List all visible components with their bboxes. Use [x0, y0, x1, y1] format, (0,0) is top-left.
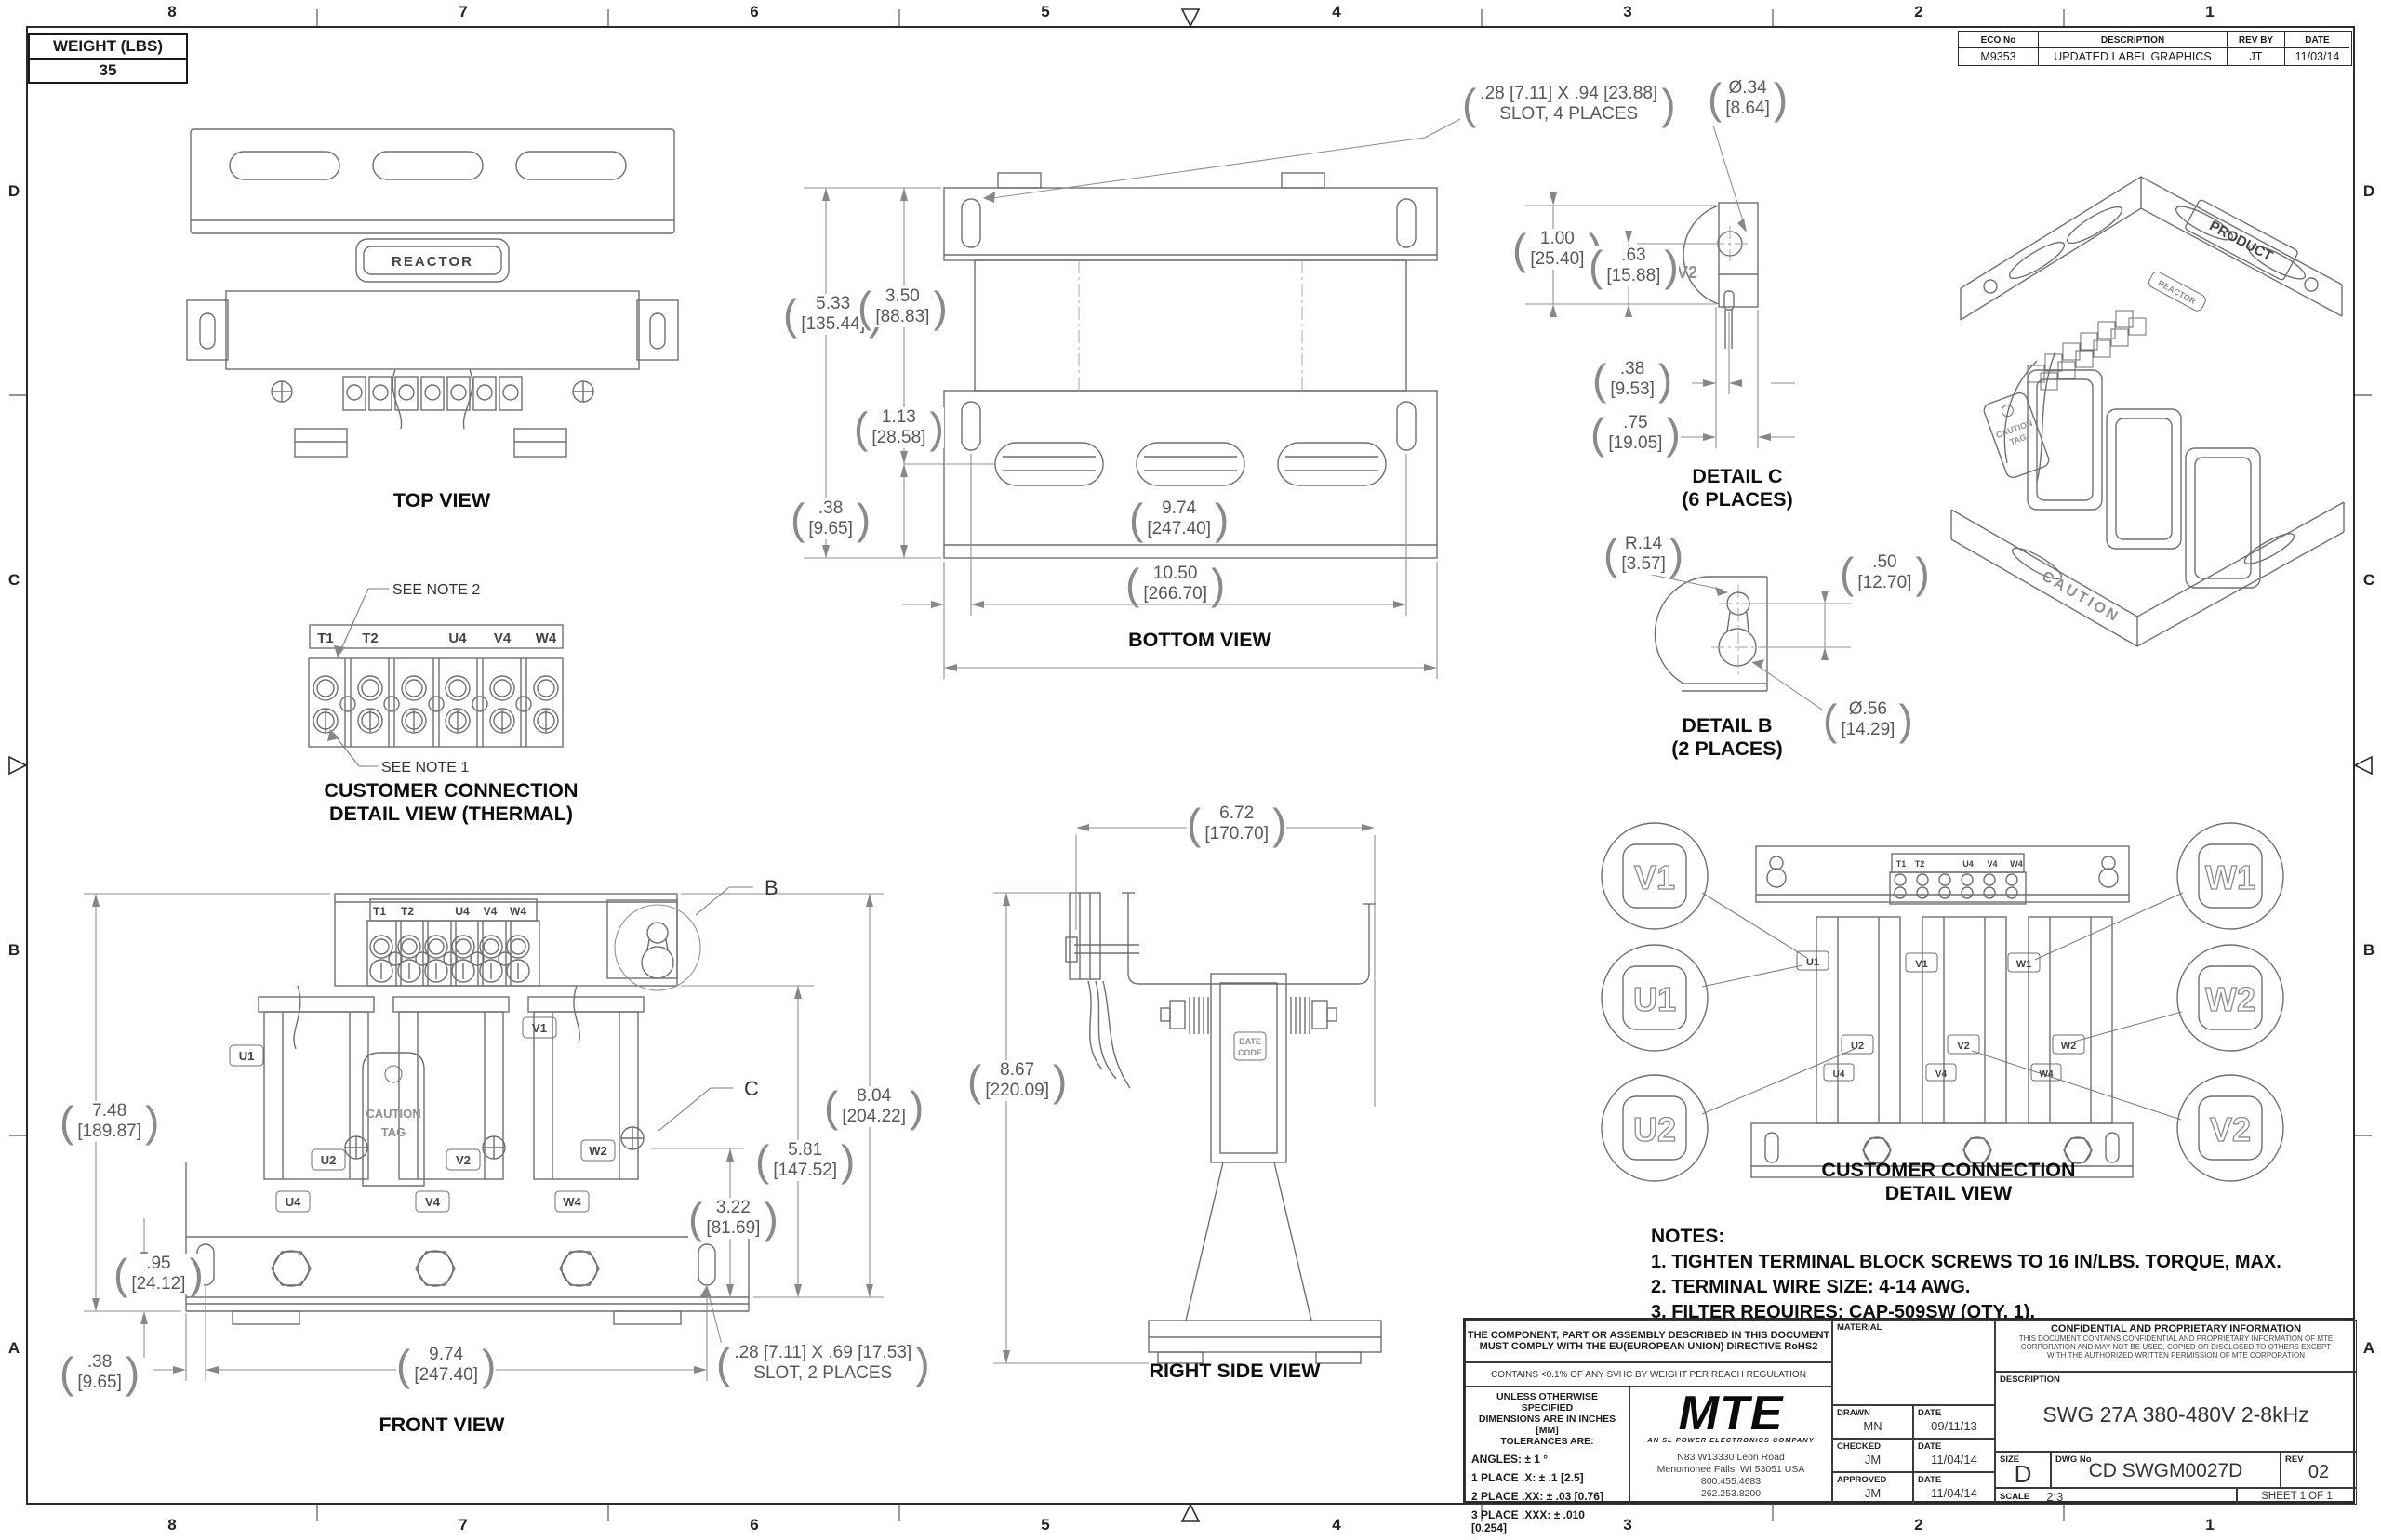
drawn-date-label: DATE: [1918, 1408, 1941, 1418]
front-tab-u1: U1: [239, 1049, 255, 1063]
drawn-date-value: 09/11/13: [1914, 1419, 1994, 1433]
description-cell: DESCRIPTION SWG 27A 380-480V 2-8kHz: [1995, 1372, 2357, 1452]
right-side-view-drawing: DATE CODE: [949, 800, 1470, 1414]
iso-terminal-block: [2028, 311, 2146, 390]
conn-tab-u1: U1: [1806, 957, 1819, 968]
eco-date-header: DATE: [2285, 32, 2349, 47]
mte-address-line4: 262.253.8200: [1630, 1488, 1831, 1500]
iso-coils: [2004, 352, 2260, 588]
slot-note-4-places: (.28 [7.11] X .94 [23.88]SLOT, 4 PLACES): [1462, 84, 1676, 125]
eco-description-value: UPDATED LABEL GRAPHICS: [2039, 47, 2228, 65]
tol-line3: TOLERANCES ARE:: [1471, 1436, 1623, 1447]
paren-close: ): [857, 500, 871, 538]
dim-mm: [25.40]: [1530, 249, 1584, 270]
confidential-heading: CONFIDENTIAL AND PROPRIETARY INFORMATION: [1996, 1323, 2356, 1334]
dim-mm: [9.53]: [1610, 379, 1655, 400]
top-view-geometry: [187, 129, 678, 457]
front-view-tab-outlines: [230, 1017, 615, 1212]
thermal-caption-line2: DETAIL VIEW (THERMAL): [321, 803, 581, 826]
front-view-base: [186, 1162, 749, 1324]
dim-detailc-to-hole: (.63[15.88]): [1589, 246, 1679, 286]
slot2-line1: .28 [7.11] X .69 [17.53]: [734, 1343, 911, 1363]
detail-b-caption: DETAIL B (2 PLACES): [1657, 714, 1797, 761]
dwg-no-label: DWG No: [2055, 1454, 2092, 1465]
dim-in: .38: [87, 1352, 112, 1373]
paren-open: (: [1462, 86, 1476, 123]
dim-mm: [28.58]: [871, 428, 925, 448]
front-tab-u4: U4: [286, 1195, 301, 1209]
bottom-view-drawing: [763, 84, 1470, 688]
date-code-line2: CODE: [1238, 1048, 1262, 1057]
notes-heading: NOTES:: [1651, 1226, 2367, 1248]
dim-bottom-slot-to-edge: (1.13[28.58]): [854, 407, 944, 448]
paren-close: ): [1664, 247, 1678, 285]
dim-mm: [204.22]: [842, 1107, 906, 1127]
dim-mm: [88.83]: [875, 307, 929, 327]
dim-front-bracket-height: (8.04[204.22]): [824, 1086, 924, 1127]
checked-value: JM: [1833, 1453, 1912, 1467]
confidential-line3: WITH THE AUTHORIZED WRITTEN PERMISSION O…: [1996, 1351, 2356, 1360]
paren-close: ): [841, 1142, 855, 1179]
iso-reactor-tag: REACTOR: [2147, 270, 2207, 312]
paren-close: ): [1915, 554, 1929, 591]
zone-right-a: A: [2355, 1339, 2381, 1358]
size-cell: SIZE D: [1995, 1452, 2051, 1488]
dim-mm: [147.52]: [773, 1161, 837, 1181]
paren-close: ): [1661, 86, 1675, 123]
top-view-caption: TOP VIEW: [372, 489, 512, 512]
weight-value: 35: [30, 60, 186, 82]
front-terminal-t2: T2: [401, 905, 414, 918]
dim-in: 1.13: [882, 407, 916, 428]
note-2: 2. TERMINAL WIRE SIZE: 4-14 AWG.: [1651, 1275, 2367, 1300]
conn-tab-w2: W2: [2061, 1041, 2077, 1052]
zone-left-a: A: [0, 1339, 28, 1358]
drawn-cell: DRAWN MN: [1832, 1405, 1913, 1439]
detail-b-caption-line2: (2 PLACES): [1657, 737, 1797, 761]
tol-angles: ANGLES: ± 1 °: [1471, 1453, 1623, 1466]
dim-detailc-pin-offset: (.38[9.53]): [1592, 359, 1672, 400]
dim-in: .63: [1621, 246, 1645, 266]
notes-block: NOTES: 1. TIGHTEN TERMINAL BLOCK SCREWS …: [1651, 1226, 2367, 1325]
conn-terminal-u4: U4: [1962, 859, 1974, 869]
drawn-label: DRAWN: [1837, 1408, 1870, 1418]
paren-close: ): [764, 1200, 778, 1237]
dim-mm: [3.57]: [1621, 554, 1666, 575]
paren-close: ): [482, 1347, 496, 1384]
eco-date-value: 11/03/14: [2285, 47, 2349, 65]
iso-caution-tag: CAUTION TAG: [1982, 391, 2051, 479]
zone-bottom-6: 6: [740, 1516, 768, 1534]
conn-tab-u2: U2: [1851, 1041, 1864, 1052]
approved-date-cell: DATE 11/04/14: [1913, 1472, 1995, 1505]
iso-product-tag: PRODUCT: [2185, 199, 2299, 281]
dim-mm: [8.64]: [1725, 99, 1770, 119]
dim-mm: [247.40]: [414, 1365, 478, 1386]
thermal-note-leaders: [333, 589, 389, 766]
paren-close: ): [933, 288, 947, 325]
slot-note-2-places: (.28 [7.11] X .69 [17.53]SLOT, 2 PLACES): [716, 1343, 930, 1384]
front-view-caution-tag: CAUTION TAG: [363, 1053, 424, 1186]
thermal-terminal-v4: V4: [494, 631, 512, 646]
zone-left-c: C: [0, 571, 28, 590]
paren-open: (: [1592, 361, 1606, 398]
paren-open: (: [755, 1142, 769, 1179]
detail-c-caption-line2: (6 PLACES): [1654, 488, 1821, 511]
weight-label: WEIGHT (LBS): [30, 35, 186, 60]
paren-close: ): [145, 1103, 159, 1140]
front-tab-v2: V2: [456, 1153, 471, 1167]
dim-bottom-edge-offset: (.38[9.65]): [791, 498, 871, 539]
dim-in: Ø.34: [1729, 78, 1767, 99]
dim-mm: [189.87]: [77, 1122, 141, 1142]
confidential-line1: THIS DOCUMENT CONTAINS CONFIDENTIAL AND …: [1996, 1334, 2356, 1343]
detail-c-caption: DETAIL C (6 PLACES): [1654, 465, 1821, 511]
paren-close: ): [1669, 536, 1683, 573]
paren-open: (: [858, 288, 871, 325]
zone-bottom-1: 1: [2196, 1516, 2224, 1534]
conn-caption-line2: DETAIL VIEW: [1809, 1182, 2088, 1205]
conn-terminal-t1: T1: [1896, 859, 1907, 869]
conn-balloon-leaders: [1702, 893, 2183, 1120]
description-value: SWG 27A 380-480V 2-8kHz: [1996, 1402, 2356, 1427]
tol-line2: DIMENSIONS ARE IN INCHES [MM]: [1471, 1414, 1623, 1436]
eco-header-row: ECO No DESCRIPTION REV BY DATE: [1959, 32, 2351, 47]
rev-value: 02: [2281, 1462, 2356, 1483]
reach-statement: CONTAINS <0.1% OF ANY SVHC BY WEIGHT PER…: [1491, 1370, 1806, 1380]
weight-box: WEIGHT (LBS) 35: [28, 33, 188, 84]
dim-right-depth: (6.72[170.70]): [1187, 803, 1286, 844]
isometric-view-drawing: PRODUCT REACTOR CAUTION TAG CAUTION: [1897, 73, 2367, 579]
conn-terminal-v4: V4: [1987, 859, 1997, 869]
balloon-u1: U1: [1633, 980, 1676, 1018]
zone-top-8: 8: [158, 3, 186, 21]
checked-label: CHECKED: [1837, 1441, 1881, 1452]
zone-top-6: 6: [740, 3, 768, 21]
zone-right-b: B: [2355, 941, 2381, 960]
dim-mm: [135.44]: [801, 314, 865, 335]
confidential-line2: CORPORATION AND MAY NOT BE USED, COPIED …: [1996, 1343, 2356, 1351]
conn-tab-w4: W4: [2040, 1069, 2054, 1080]
paren-open: (: [688, 1200, 702, 1237]
eco-no-value: M9353: [1959, 47, 2039, 65]
dim-in: .75: [1623, 413, 1647, 433]
mte-tagline: AN SL POWER ELECTRONICS COMPANY: [1630, 1436, 1831, 1444]
mte-address-line3: 800.455.4683: [1630, 1476, 1831, 1488]
dim-in: 3.22: [716, 1198, 751, 1218]
right-side-view-caption: RIGHT SIDE VIEW: [1139, 1360, 1330, 1383]
paren-open: (: [396, 1347, 410, 1384]
paren-close: ): [1666, 415, 1680, 452]
conn-tab-v2: V2: [1957, 1041, 1969, 1052]
dim-bottom-slot-span: (9.74[247.40]): [1129, 498, 1229, 539]
detail-b-geometry: [1655, 577, 1767, 691]
approved-date-label: DATE: [1918, 1475, 1941, 1485]
dim-in: .38: [818, 498, 843, 519]
logo-cell: MTE AN SL POWER ELECTRONICS COMPANY N83 …: [1629, 1387, 1832, 1505]
paren-open: (: [60, 1354, 73, 1391]
dim-mm: [15.88]: [1606, 266, 1660, 286]
bottom-view-caption: BOTTOM VIEW: [1111, 629, 1288, 652]
dim-in: 9.74: [429, 1345, 463, 1365]
front-tab-v4: V4: [425, 1195, 441, 1209]
eco-no-header: ECO No: [1959, 32, 2039, 47]
thermal-detail-caption: CUSTOMER CONNECTION DETAIL VIEW (THERMAL…: [321, 779, 581, 826]
dim-mm: [12.70]: [1857, 573, 1911, 593]
right-side-geometry: [1066, 893, 1381, 1363]
zone-top-7: 7: [449, 3, 477, 21]
front-tab-u2: U2: [321, 1153, 337, 1167]
confidential-cell: CONFIDENTIAL AND PROPRIETARY INFORMATION…: [1995, 1320, 2357, 1372]
paren-open: (: [1603, 536, 1617, 573]
tol-place1: 1 PLACE .X: ± .1 [2.5]: [1471, 1471, 1623, 1484]
paren-close: ): [1658, 361, 1672, 398]
thermal-terminal-w4: W4: [536, 631, 557, 646]
callout-c-letter: C: [744, 1077, 759, 1100]
mte-address-line2: Menomonee Falls, WI 53051 USA: [1630, 1464, 1831, 1476]
dim-mm: [247.40]: [1147, 519, 1211, 539]
paren-open: (: [1708, 80, 1722, 117]
thermal-terminal-t2: T2: [362, 631, 379, 646]
tol-line1: UNLESS OTHERWISE SPECIFIED: [1471, 1391, 1623, 1414]
eco-revision-table: ECO No DESCRIPTION REV BY DATE M9353 UPD…: [1958, 31, 2352, 66]
dim-front-mid-height: (5.81[147.52]): [755, 1140, 855, 1181]
sheet-value: SHEET 1 OF 1: [2261, 1491, 2332, 1502]
paren-open: (: [1187, 805, 1201, 843]
drawn-date-cell: DATE 09/11/13: [1913, 1405, 1995, 1439]
paren-close: ): [915, 1345, 929, 1382]
balloon-w2: W2: [2205, 980, 2255, 1018]
reach-cell: CONTAINS <0.1% OF ANY SVHC BY WEIGHT PER…: [1465, 1362, 1832, 1387]
see-note-1-label: SEE NOTE 1: [381, 760, 469, 776]
tol-place3: 3 PLACE .XXX: ± .010 [0.254]: [1471, 1508, 1623, 1534]
checked-date-cell: DATE 11/04/14: [1913, 1439, 1995, 1472]
paren-open: (: [1840, 554, 1854, 591]
dim-in: 6.72: [1219, 803, 1254, 824]
dim-front-coil-height: (3.22[81.69]): [688, 1198, 778, 1239]
dim-right-overall-height: (8.67[220.09]): [967, 1060, 1067, 1101]
eco-description-header: DESCRIPTION: [2039, 32, 2228, 47]
compliance-line2: MUST COMPLY WITH THE EU(EUROPEAN UNION) …: [1480, 1341, 1818, 1352]
zone-left-b: B: [0, 941, 28, 960]
paren-open: (: [1129, 500, 1143, 538]
tol-place2: 2 PLACE .XX: ± .03 [0.76]: [1471, 1490, 1623, 1503]
zone-left-d: D: [0, 182, 28, 201]
dim-mm: [14.29]: [1841, 720, 1895, 740]
paren-close: ): [189, 1255, 203, 1293]
title-block: THE COMPONENT, PART OR ASSEMBLY DESCRIBE…: [1463, 1318, 2355, 1503]
dwg-no-cell: DWG No CD SWGM0027D: [2051, 1452, 2281, 1488]
size-label: SIZE: [2000, 1454, 2019, 1465]
paren-close: ): [1774, 80, 1788, 117]
conn-tab-w1: W1: [2016, 959, 2032, 970]
compliance-line1: THE COMPONENT, PART OR ASSEMBLY DESCRIBE…: [1468, 1330, 1829, 1341]
paren-open: (: [1823, 701, 1837, 738]
dim-in: 8.04: [857, 1086, 891, 1107]
reactor-nameplate-label: REACTOR: [392, 254, 473, 270]
detail-b-caption-line1: DETAIL B: [1657, 714, 1797, 737]
zone-bottom-4: 4: [1323, 1516, 1350, 1534]
dim-mm: [9.65]: [808, 519, 853, 539]
paren-open: (: [1512, 231, 1526, 268]
description-label: DESCRIPTION: [2000, 1374, 2060, 1385]
paren-open: (: [967, 1062, 981, 1099]
conn-tab-outlines: [1797, 951, 2084, 1081]
thermal-terminal-t1: T1: [317, 631, 334, 646]
dim-in: .95: [146, 1254, 170, 1274]
front-terminal-w4: W4: [510, 905, 526, 918]
zone-top-2: 2: [1905, 3, 1933, 21]
iso-bracket: [1961, 177, 2342, 320]
detail-b-arrowheads: [1715, 587, 1829, 669]
dim-detailb-radius: (R.14[3.57]): [1603, 534, 1683, 575]
zone-right-d: D: [2355, 182, 2381, 201]
slot2-line2: SLOT, 2 PLACES: [753, 1363, 892, 1384]
detail-c-v2-label: V2: [1677, 263, 1697, 282]
balloon-v1: V1: [1634, 858, 1675, 896]
conn-tab-v4: V4: [1935, 1069, 1948, 1080]
dim-mm: [220.09]: [985, 1081, 1049, 1101]
dim-in: 5.81: [788, 1140, 822, 1161]
mte-logo: MTE: [1630, 1391, 1831, 1436]
top-view-drawing: REACTOR: [172, 116, 693, 498]
slot4-line2: SLOT, 4 PLACES: [1499, 104, 1638, 125]
front-terminal-t1: T1: [373, 905, 386, 918]
front-tab-v1: V1: [532, 1021, 547, 1035]
zone-bottom-8: 8: [158, 1516, 186, 1534]
zone-bottom-7: 7: [449, 1516, 477, 1534]
dim-front-base-height: (.95[24.12]): [113, 1254, 204, 1294]
dim-in: 9.74: [1162, 498, 1196, 519]
sheet-cell: SHEET 1 OF 1: [2237, 1488, 2357, 1505]
paren-close: ): [1215, 500, 1229, 538]
dim-bottom-overall-width: (10.50[266.70]): [1125, 564, 1225, 604]
balloon-v2: V2: [2210, 1110, 2251, 1148]
note-1: 1. TIGHTEN TERMINAL BLOCK SCREWS TO 16 I…: [1651, 1250, 2367, 1275]
dim-in: 7.48: [92, 1101, 126, 1122]
drawn-value: MN: [1833, 1419, 1912, 1433]
dim-bottom-height-to-slot: (3.50[88.83]): [858, 286, 948, 327]
dim-detailb-hole-dia: (Ø.56[14.29]): [1823, 699, 1913, 740]
dim-mm: [19.05]: [1608, 433, 1662, 454]
paren-open: (: [1590, 415, 1604, 452]
rev-cell: REV 02: [2281, 1452, 2357, 1488]
conn-terminal-w4: W4: [2010, 859, 2023, 869]
conn-mini-product: [1751, 846, 2133, 1177]
detail-b-balloon-circle: [615, 905, 700, 990]
scale-cell: SCALE 2:3: [1995, 1488, 2237, 1505]
zone-bottom-2: 2: [1905, 1516, 1933, 1534]
eco-data-row: M9353 UPDATED LABEL GRAPHICS JT 11/03/14: [1959, 47, 2351, 65]
paren-close: ): [1898, 701, 1912, 738]
slot4-line1: .28 [7.11] X .94 [23.88]: [1480, 84, 1657, 104]
front-view-coils: [259, 986, 644, 1179]
zone-right-c: C: [2355, 571, 2381, 590]
zone-bottom-5: 5: [1031, 1516, 1059, 1534]
conn-tab-v1: V1: [1915, 959, 1927, 970]
zone-top-3: 3: [1614, 3, 1642, 21]
rev-label: REV: [2285, 1454, 2304, 1465]
front-terminal-u4: U4: [455, 905, 470, 918]
dim-in: R.14: [1625, 534, 1662, 554]
thermal-terminal-u4: U4: [448, 631, 467, 646]
conn-balloons: [1602, 823, 2283, 1181]
dim-in: .50: [1872, 552, 1896, 573]
paren-close: ): [929, 409, 943, 446]
dim-front-edge-offset: (.38[9.65]): [60, 1352, 140, 1393]
dim-front-overall-height: (7.48[189.87]): [60, 1101, 159, 1142]
checked-date-label: DATE: [1918, 1441, 1941, 1452]
approved-cell: APPROVED JM: [1832, 1472, 1913, 1505]
dim-mm: [81.69]: [706, 1218, 760, 1239]
zone-top-4: 4: [1323, 3, 1350, 21]
date-code-tag: DATE CODE: [1234, 1032, 1266, 1060]
front-view-bracket: [335, 894, 677, 986]
paren-open: (: [791, 500, 805, 538]
front-view-callout-leaders: [658, 887, 753, 1131]
front-view-caption: FRONT VIEW: [363, 1414, 521, 1437]
date-code-line1: DATE: [1239, 1037, 1261, 1046]
approved-label: APPROVED: [1837, 1475, 1886, 1485]
approved-date-value: 11/04/14: [1914, 1486, 1994, 1500]
dim-in: 10.50: [1153, 564, 1198, 584]
iso-reactor-label: REACTOR: [2157, 278, 2198, 306]
see-note-2-label: SEE NOTE 2: [392, 582, 480, 598]
paren-close: ): [910, 1088, 924, 1125]
detail-b-centerlines: [1711, 585, 1763, 674]
dim-detailb-center-dist: (.50[12.70]): [1840, 552, 1930, 593]
caution-tag-line2: TAG: [381, 1125, 406, 1139]
paren-close: ): [1211, 565, 1225, 603]
dim-mm: [24.12]: [131, 1274, 185, 1294]
paren-open: (: [1589, 247, 1603, 285]
compliance-cell: THE COMPONENT, PART OR ASSEMBLY DESCRIBE…: [1465, 1320, 1832, 1362]
material-label: MATERIAL: [1837, 1322, 1882, 1333]
approved-value: JM: [1833, 1486, 1912, 1500]
paren-open: (: [824, 1088, 838, 1125]
thermal-caption-line1: CUSTOMER CONNECTION: [321, 779, 581, 803]
checked-cell: CHECKED JM: [1832, 1439, 1913, 1472]
scale-value: 2:3: [2046, 1490, 2063, 1504]
paren-open: (: [60, 1103, 73, 1140]
connection-detail-caption: CUSTOMER CONNECTION DETAIL VIEW: [1809, 1159, 2088, 1205]
balloon-u2: U2: [1633, 1110, 1676, 1148]
dim-mm: [170.70]: [1204, 824, 1269, 844]
eco-revby-value: JT: [2228, 47, 2285, 65]
conn-terminal-t2: T2: [1915, 859, 1925, 869]
front-tab-w4: W4: [563, 1195, 581, 1209]
paren-open: (: [1125, 565, 1139, 603]
caution-tag-line1: CAUTION: [366, 1107, 420, 1121]
dim-mm: [9.65]: [77, 1373, 122, 1393]
dim-in: 5.33: [816, 294, 850, 314]
balloon-w1: W1: [2205, 858, 2255, 896]
dim-in: 8.67: [1000, 1060, 1034, 1081]
dim-in: 3.50: [885, 286, 920, 307]
zone-top-5: 5: [1031, 3, 1059, 21]
thermal-terminal-strip: [309, 625, 563, 747]
mte-address-line1: N83 W13330 Leon Road: [1630, 1452, 1831, 1464]
paren-close: ): [1053, 1062, 1067, 1099]
paren-close: ): [1272, 805, 1286, 843]
dim-in: Ø.56: [1849, 699, 1887, 720]
dim-in: .38: [1620, 359, 1644, 379]
engineering-drawing-sheet: { "sheet": { "zones_top": ["8","7","6","…: [0, 0, 2381, 1540]
tolerance-cell: UNLESS OTHERWISE SPECIFIED DIMENSIONS AR…: [1465, 1387, 1629, 1505]
dim-front-slot-span: (9.74[247.40]): [396, 1345, 496, 1386]
detail-c-caption-line1: DETAIL C: [1654, 465, 1821, 488]
conn-tab-u4: U4: [1833, 1069, 1845, 1080]
